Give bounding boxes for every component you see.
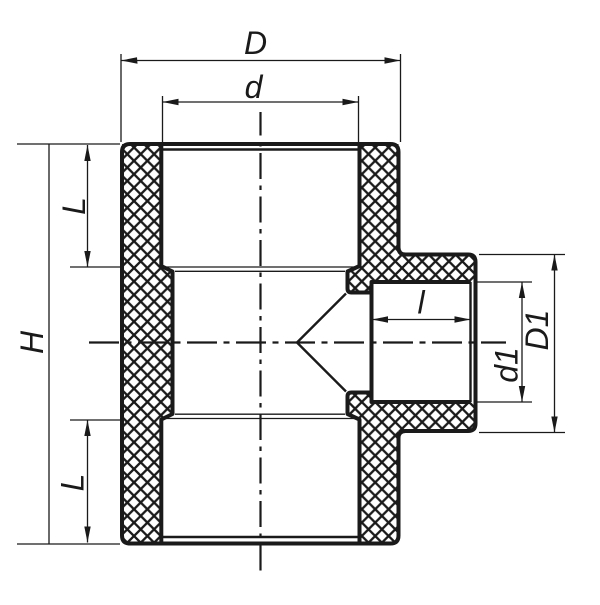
svg-text:H: H: [14, 330, 50, 354]
svg-text:l: l: [417, 285, 425, 321]
svg-text:L: L: [55, 474, 91, 492]
svg-text:D1: D1: [519, 310, 555, 351]
svg-text:d1: d1: [489, 347, 525, 383]
svg-text:L: L: [56, 197, 92, 215]
svg-text:d: d: [245, 69, 264, 105]
svg-text:D: D: [244, 25, 267, 61]
